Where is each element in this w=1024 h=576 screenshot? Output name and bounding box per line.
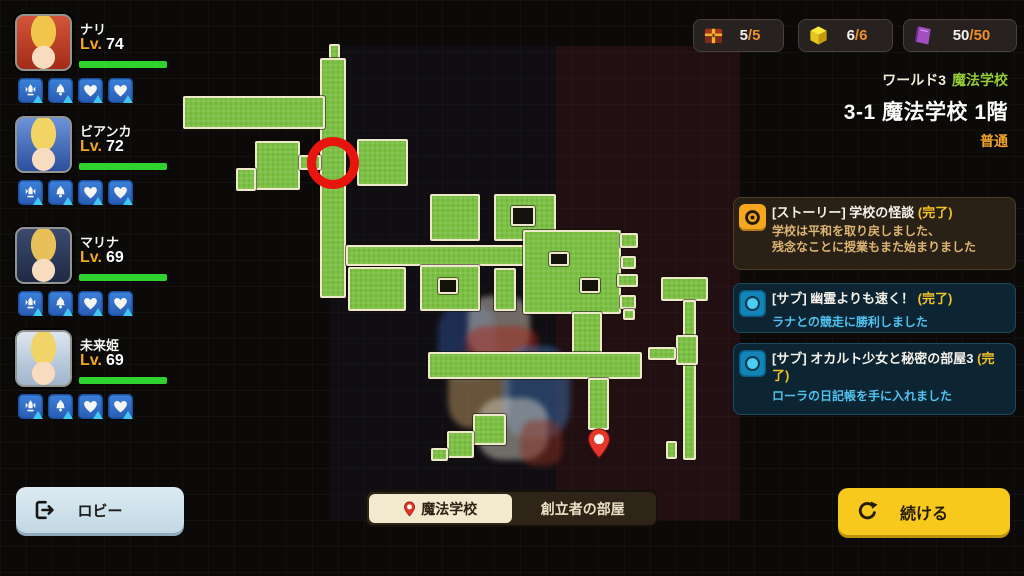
resource-value: 6/6	[830, 27, 884, 44]
treasure-chest-icon	[702, 24, 725, 47]
upgrade-triangle-icon	[33, 95, 43, 103]
party-member-4: 未来姫 Lv.69	[0, 330, 200, 430]
difficulty-badge: 普通	[980, 131, 1008, 151]
sub-quest-icon	[739, 350, 766, 377]
continue-button[interactable]: 続ける	[838, 488, 1010, 535]
skill-heart-icon[interactable]	[78, 78, 103, 103]
upgrade-triangle-icon	[63, 95, 73, 103]
map-room	[623, 309, 635, 320]
map-room	[588, 378, 609, 430]
character-level: Lv.69	[80, 352, 124, 370]
party-member-1: ナリ Lv.74	[0, 14, 200, 114]
map-hole	[580, 278, 600, 293]
skill-crest-icon[interactable]	[18, 78, 43, 103]
skill-crest-icon[interactable]	[18, 394, 43, 419]
upgrade-triangle-icon	[93, 95, 103, 103]
character-portrait[interactable]	[15, 116, 72, 173]
quest-title: [ストーリー] 学校の怪談 (完了)	[772, 204, 1007, 221]
gold-cube-icon	[807, 24, 830, 47]
hp-bar	[79, 274, 167, 281]
quest-description: ローラの日記帳を手に入れました	[772, 388, 1007, 404]
map-room	[523, 230, 621, 314]
upgrade-triangle-icon	[123, 197, 133, 205]
battle-result-map-screen: ナリ Lv.74 ビアンカ Lv.72 マリナ Lv.69	[0, 0, 1024, 576]
ghost-art-blob	[520, 420, 562, 466]
quest-panel-sub-2: [サブ] オカルト少女と秘密の部屋3 (完了) ローラの日記帳を手に入れました	[733, 343, 1016, 415]
stage-title: 3-1 魔法学校 1階	[844, 96, 1008, 126]
skill-heart-icon[interactable]	[78, 394, 103, 419]
map-room	[236, 168, 256, 191]
quest-description: 学校は平和を取り戻しました、	[772, 223, 1007, 239]
quest-panel-story: [ストーリー] 学校の怪談 (完了) 学校は平和を取り戻しました、 残念なことに…	[733, 197, 1016, 270]
quest-status: (完了)	[918, 205, 953, 220]
upgrade-triangle-icon	[63, 308, 73, 316]
map-room	[431, 448, 448, 461]
sub-quest-icon	[739, 290, 766, 317]
map-hole	[438, 278, 458, 294]
map-room	[620, 233, 638, 248]
resource-counter-chest[interactable]: 5/5	[693, 19, 784, 52]
party-member-3: マリナ Lv.69	[0, 227, 200, 327]
character-level: Lv.69	[80, 249, 124, 267]
hp-bar	[79, 61, 167, 68]
quest-description: ラナとの競走に勝利しました	[772, 314, 1007, 330]
skill-bell-icon[interactable]	[48, 394, 73, 419]
skill-bell-icon[interactable]	[48, 291, 73, 316]
skill-icon-row	[18, 78, 133, 103]
character-level: Lv.72	[80, 138, 124, 156]
skill-heart-icon[interactable]	[78, 291, 103, 316]
skill-heart-icon[interactable]	[108, 78, 133, 103]
quest-panel-sub-1: [サブ] 幽霊よりも速く！ (完了) ラナとの競走に勝利しました	[733, 283, 1016, 333]
skill-heart-icon[interactable]	[108, 180, 133, 205]
hp-bar	[79, 163, 167, 170]
map-room	[648, 347, 676, 360]
skill-bell-icon[interactable]	[48, 78, 73, 103]
lobby-button-label: ロビー	[77, 500, 122, 521]
current-location-circle-marker	[307, 137, 359, 189]
resource-value: 50/50	[935, 27, 1008, 44]
map-room	[473, 414, 506, 445]
map-hole	[511, 206, 535, 226]
map-room	[666, 441, 677, 459]
upgrade-triangle-icon	[93, 308, 103, 316]
quest-title: [サブ] オカルト少女と秘密の部屋3 (完了)	[772, 350, 1007, 384]
upgrade-triangle-icon	[123, 411, 133, 419]
upgrade-triangle-icon	[33, 411, 43, 419]
map-room	[357, 139, 408, 186]
party-member-2: ビアンカ Lv.72	[0, 116, 200, 216]
map-room	[683, 300, 696, 460]
map-room	[621, 256, 636, 269]
map-tab-switcher: 魔法学校 創立者の部屋	[365, 490, 658, 527]
destination-pin-icon	[586, 427, 612, 460]
map-room	[494, 268, 516, 311]
exit-door-icon	[32, 498, 56, 522]
resource-counter-cube[interactable]: 6/6	[798, 19, 893, 52]
purple-book-icon	[912, 24, 935, 47]
tab-founders-room[interactable]: 創立者の部屋	[512, 494, 655, 523]
upgrade-triangle-icon	[93, 411, 103, 419]
quest-description: 残念なことに授業もまた始まりました	[772, 239, 1007, 255]
upgrade-triangle-icon	[93, 197, 103, 205]
hp-bar	[79, 377, 167, 384]
quest-title: [サブ] 幽霊よりも速く！ (完了)	[772, 290, 1007, 307]
upgrade-triangle-icon	[63, 197, 73, 205]
skill-crest-icon[interactable]	[18, 291, 43, 316]
location-pin-icon	[403, 501, 416, 517]
map-room	[572, 312, 602, 356]
upgrade-triangle-icon	[123, 95, 133, 103]
map-room	[617, 274, 638, 287]
character-level: Lv.74	[80, 36, 124, 54]
map-room	[661, 277, 708, 301]
map-room	[255, 141, 300, 190]
tab-label: 創立者の部屋	[541, 499, 625, 519]
skill-bell-icon[interactable]	[48, 180, 73, 205]
map-room	[447, 431, 474, 458]
world-breadcrumb: ワールド3魔法学校	[882, 70, 1008, 90]
map-room	[620, 295, 636, 309]
refresh-icon	[856, 500, 879, 523]
story-quest-icon	[739, 204, 766, 231]
upgrade-triangle-icon	[123, 308, 133, 316]
skill-heart-icon[interactable]	[108, 394, 133, 419]
character-portrait[interactable]	[15, 330, 72, 387]
map-room	[348, 267, 406, 311]
character-portrait[interactable]	[15, 227, 72, 284]
skill-icon-row	[18, 180, 133, 205]
map-room	[183, 96, 325, 129]
upgrade-triangle-icon	[33, 197, 43, 205]
map-hole	[549, 252, 569, 266]
resource-value: 5/5	[725, 27, 775, 44]
skill-icon-row	[18, 394, 133, 419]
tab-label: 魔法学校	[421, 499, 477, 519]
skill-crest-icon[interactable]	[18, 180, 43, 205]
skill-heart-icon[interactable]	[78, 180, 103, 205]
skill-icon-row	[18, 291, 133, 316]
upgrade-triangle-icon	[63, 411, 73, 419]
character-portrait[interactable]	[15, 14, 72, 71]
map-room	[430, 194, 480, 241]
upgrade-triangle-icon	[33, 308, 43, 316]
tab-magic-school[interactable]: 魔法学校	[369, 494, 512, 523]
map-room	[676, 335, 698, 365]
lobby-button[interactable]: ロビー	[16, 487, 184, 533]
quest-status: (完了)	[918, 291, 953, 306]
skill-heart-icon[interactable]	[108, 291, 133, 316]
resource-counter-book[interactable]: 50/50	[903, 19, 1017, 52]
map-room	[428, 352, 642, 379]
